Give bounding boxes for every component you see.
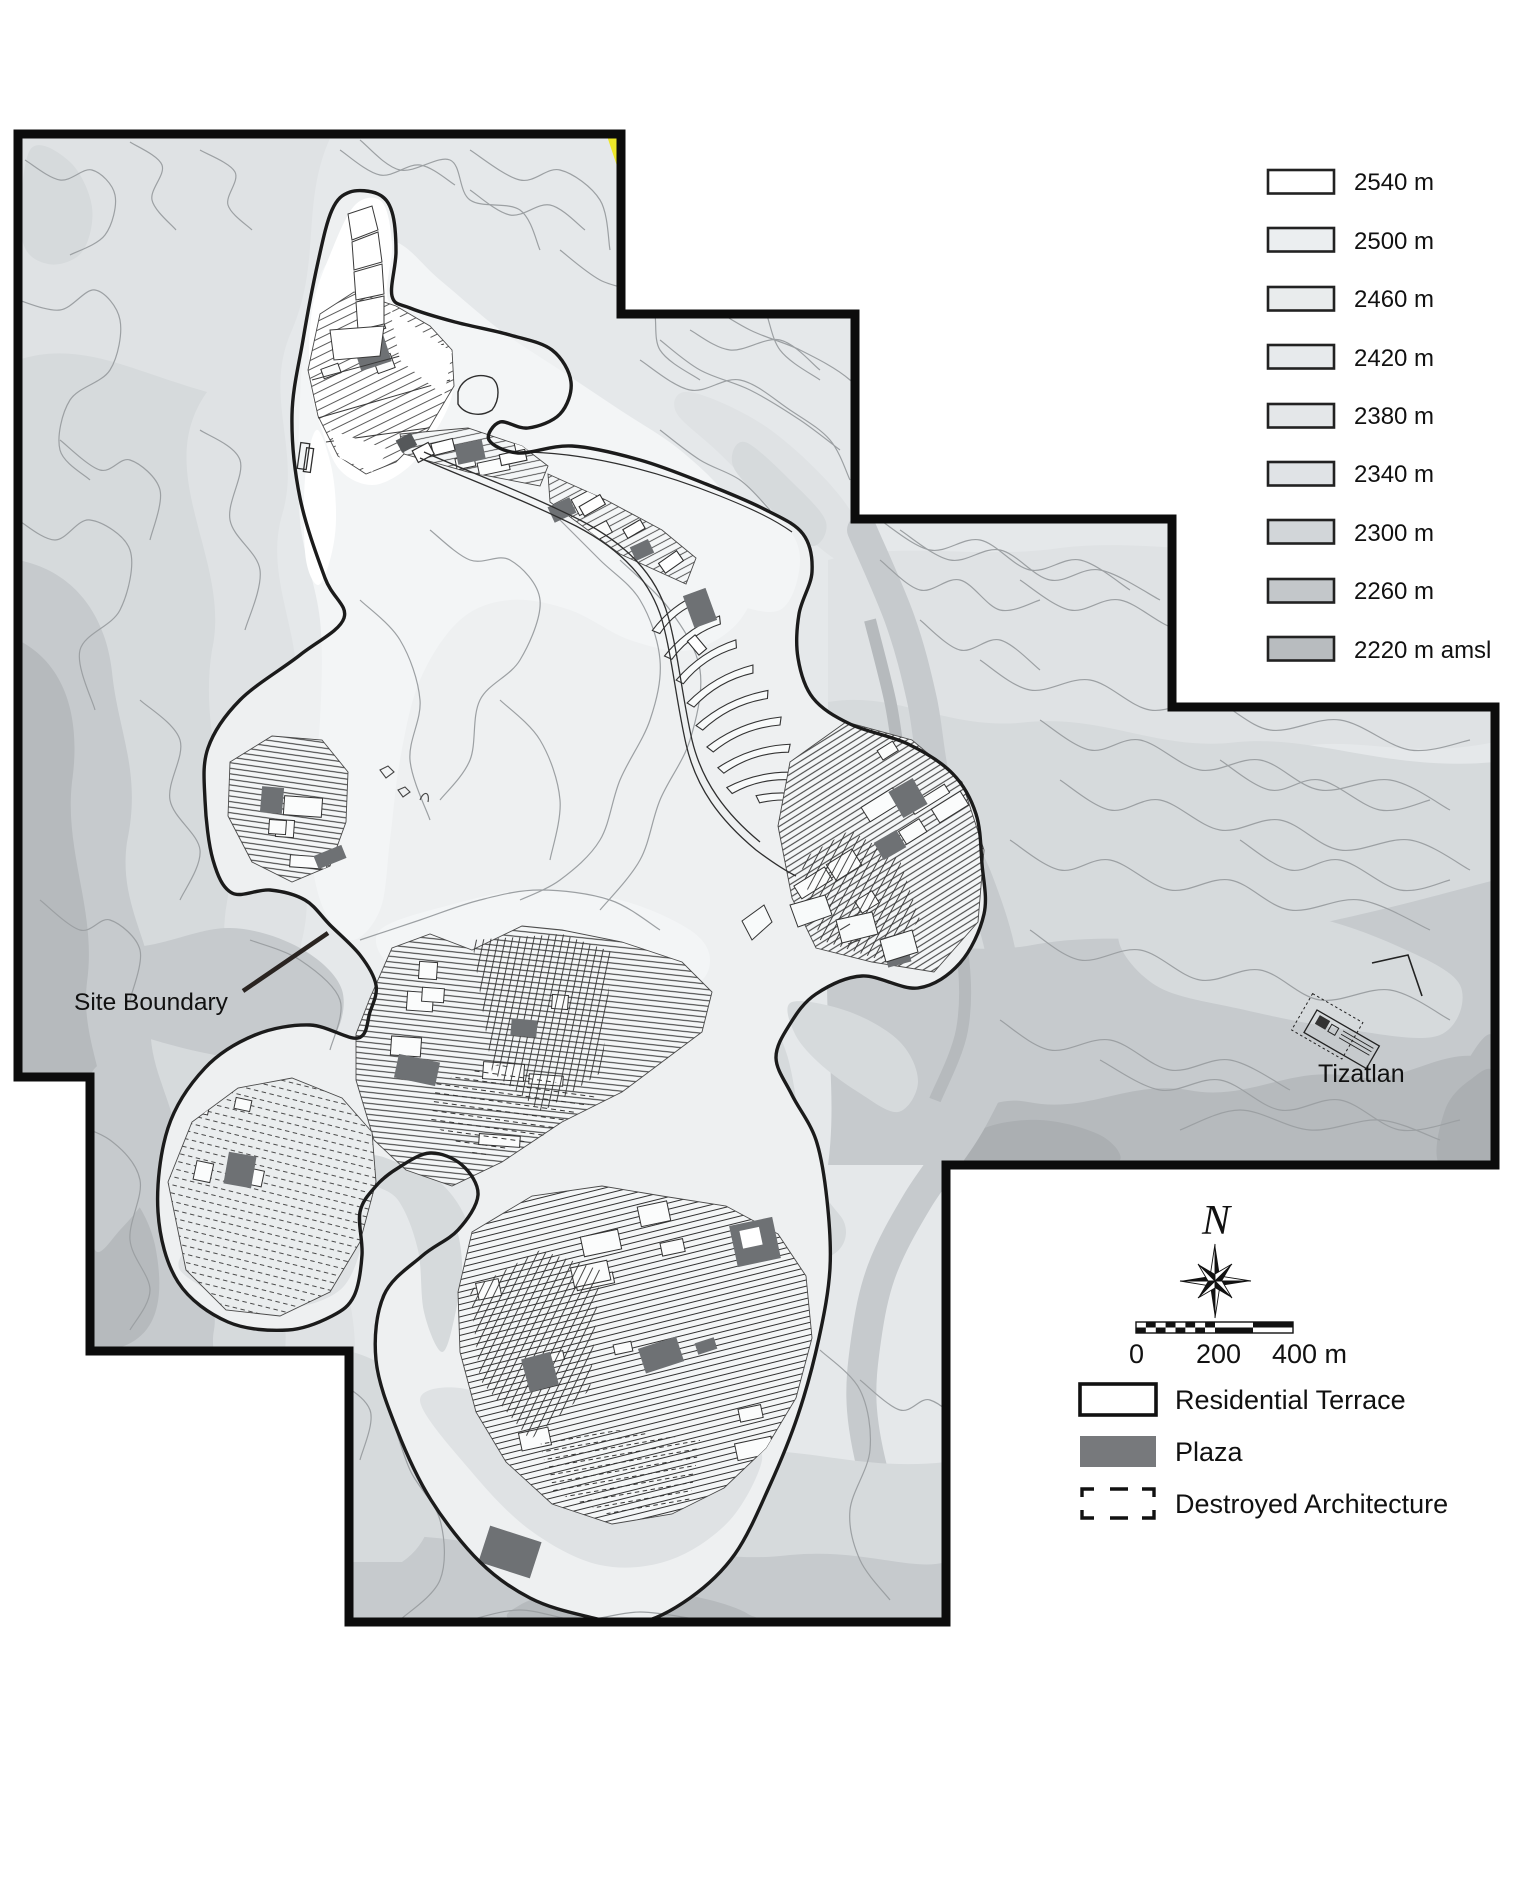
svg-text:0: 0 [1129,1339,1144,1369]
svg-text:Tizatlan: Tizatlan [1318,1060,1405,1088]
svg-text:2340 m: 2340 m [1354,461,1434,488]
svg-text:2460 m: 2460 m [1354,286,1434,313]
svg-text:2500 m: 2500 m [1354,228,1434,255]
svg-text:Residential Terrace: Residential Terrace [1175,1385,1406,1415]
svg-text:Plaza: Plaza [1175,1437,1244,1467]
svg-text:2540 m: 2540 m [1354,169,1434,196]
svg-text:2220 m amsl: 2220 m amsl [1354,637,1491,664]
svg-text:Destroyed Architecture: Destroyed Architecture [1175,1489,1448,1519]
svg-text:N: N [1201,1198,1232,1244]
svg-text:2420 m: 2420 m [1354,345,1434,372]
svg-text:2260 m: 2260 m [1354,578,1434,605]
svg-text:Site Boundary: Site Boundary [74,989,229,1016]
svg-text:200: 200 [1196,1339,1241,1369]
svg-text:400 m: 400 m [1272,1339,1347,1369]
svg-text:2300 m: 2300 m [1354,520,1434,547]
svg-text:2380 m: 2380 m [1354,403,1434,430]
